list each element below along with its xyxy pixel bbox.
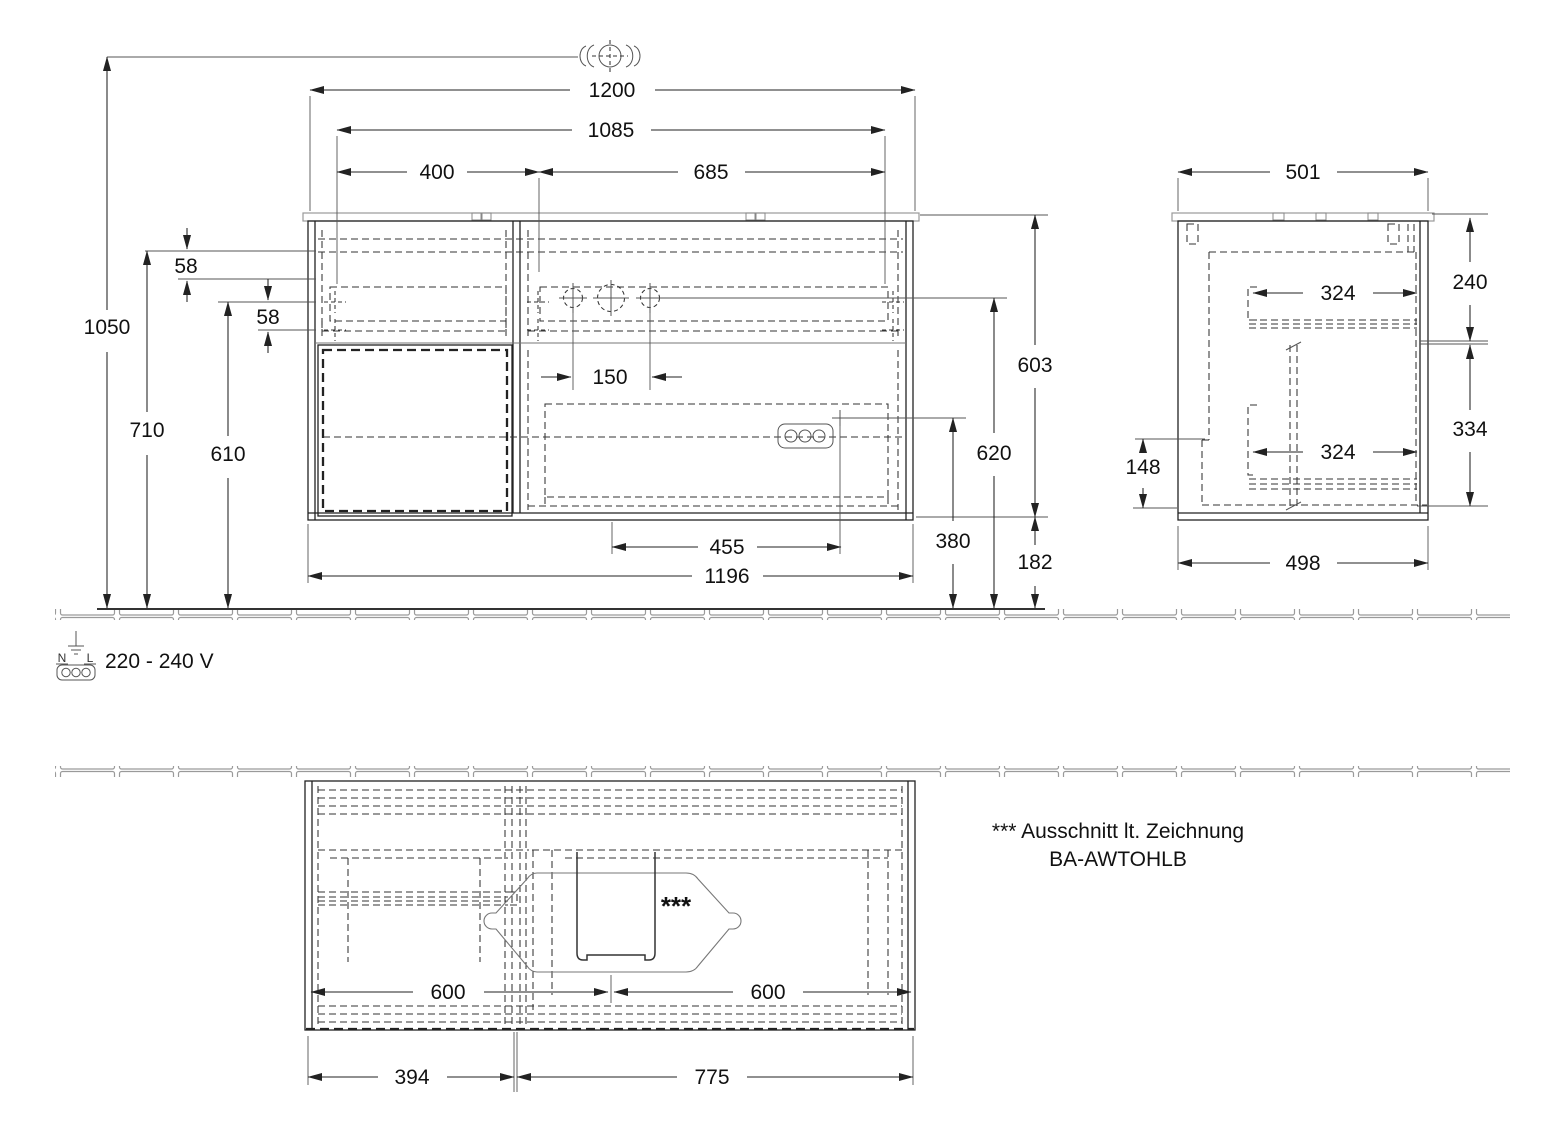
- dim-394: 394: [394, 1066, 429, 1089]
- right-drawer-dashed: [540, 287, 888, 321]
- faucet-centerline-icon: [107, 40, 640, 72]
- dim-58a: 58: [174, 255, 197, 278]
- socket-position-cross: [832, 410, 848, 554]
- dim-400: 400: [419, 161, 454, 184]
- note-line2: BA-AWTOHLB: [1049, 848, 1187, 871]
- countertop-front: [303, 213, 919, 221]
- wall-hatch: [55, 766, 1510, 777]
- plan-dimensions: 600 600 394 775: [308, 975, 913, 1092]
- dim-710: 710: [129, 419, 164, 442]
- mains-connection-icon: N L: [56, 631, 96, 680]
- countertop-side: [1172, 213, 1434, 221]
- terminal-l-label: L: [87, 651, 94, 665]
- dim-603: 603: [1017, 354, 1052, 377]
- technical-drawing-page: 1200 1085 400 685 1050 710 610 58: [0, 0, 1560, 1123]
- front-dimensions: 1200 1085 400 685 1050 710 610 58: [84, 57, 1053, 608]
- sink-cutout: ***: [484, 852, 741, 972]
- open-shelf-compartment: [318, 345, 512, 516]
- power-socket-icon: [778, 424, 833, 448]
- plan-view: ***: [305, 781, 915, 1030]
- floor-hatch: [55, 609, 1510, 620]
- dim-150: 150: [592, 366, 627, 389]
- cabinet-side-outline: [1178, 221, 1428, 520]
- dim-1050: 1050: [84, 316, 131, 339]
- dim-182: 182: [1017, 551, 1052, 574]
- vanity-dimension-drawing: 1200 1085 400 685 1050 710 610 58: [0, 0, 1560, 1123]
- cutout-note: *** Ausschnitt lt. Zeichnung BA-AWTOHLB: [992, 820, 1244, 871]
- cutout-marker: ***: [661, 891, 692, 921]
- dim-600-right: 600: [750, 981, 785, 1004]
- dim-58b: 58: [256, 306, 279, 329]
- faucet-holes-icon: [559, 280, 664, 316]
- dim-498: 498: [1285, 552, 1320, 575]
- dim-501: 501: [1285, 161, 1320, 184]
- dim-334: 334: [1452, 418, 1487, 441]
- dim-775: 775: [694, 1066, 729, 1089]
- dim-324-upper: 324: [1320, 282, 1355, 305]
- dim-455: 455: [709, 536, 744, 559]
- left-drawer-dashed: [330, 287, 506, 321]
- terminal-n-label: N: [58, 651, 67, 665]
- dim-148: 148: [1125, 456, 1160, 479]
- voltage-label: 220 - 240 V: [105, 650, 214, 673]
- dim-1085: 1085: [588, 119, 635, 142]
- dim-685: 685: [693, 161, 728, 184]
- dim-324-lower: 324: [1320, 441, 1355, 464]
- dim-600-left: 600: [430, 981, 465, 1004]
- dim-1200: 1200: [589, 79, 636, 102]
- dim-1196: 1196: [704, 565, 749, 588]
- dim-620: 620: [976, 442, 1011, 465]
- dim-380: 380: [935, 530, 970, 553]
- dim-240: 240: [1452, 271, 1487, 294]
- side-view: [1172, 213, 1434, 520]
- note-line1: *** Ausschnitt lt. Zeichnung: [992, 820, 1244, 843]
- dim-610: 610: [210, 443, 245, 466]
